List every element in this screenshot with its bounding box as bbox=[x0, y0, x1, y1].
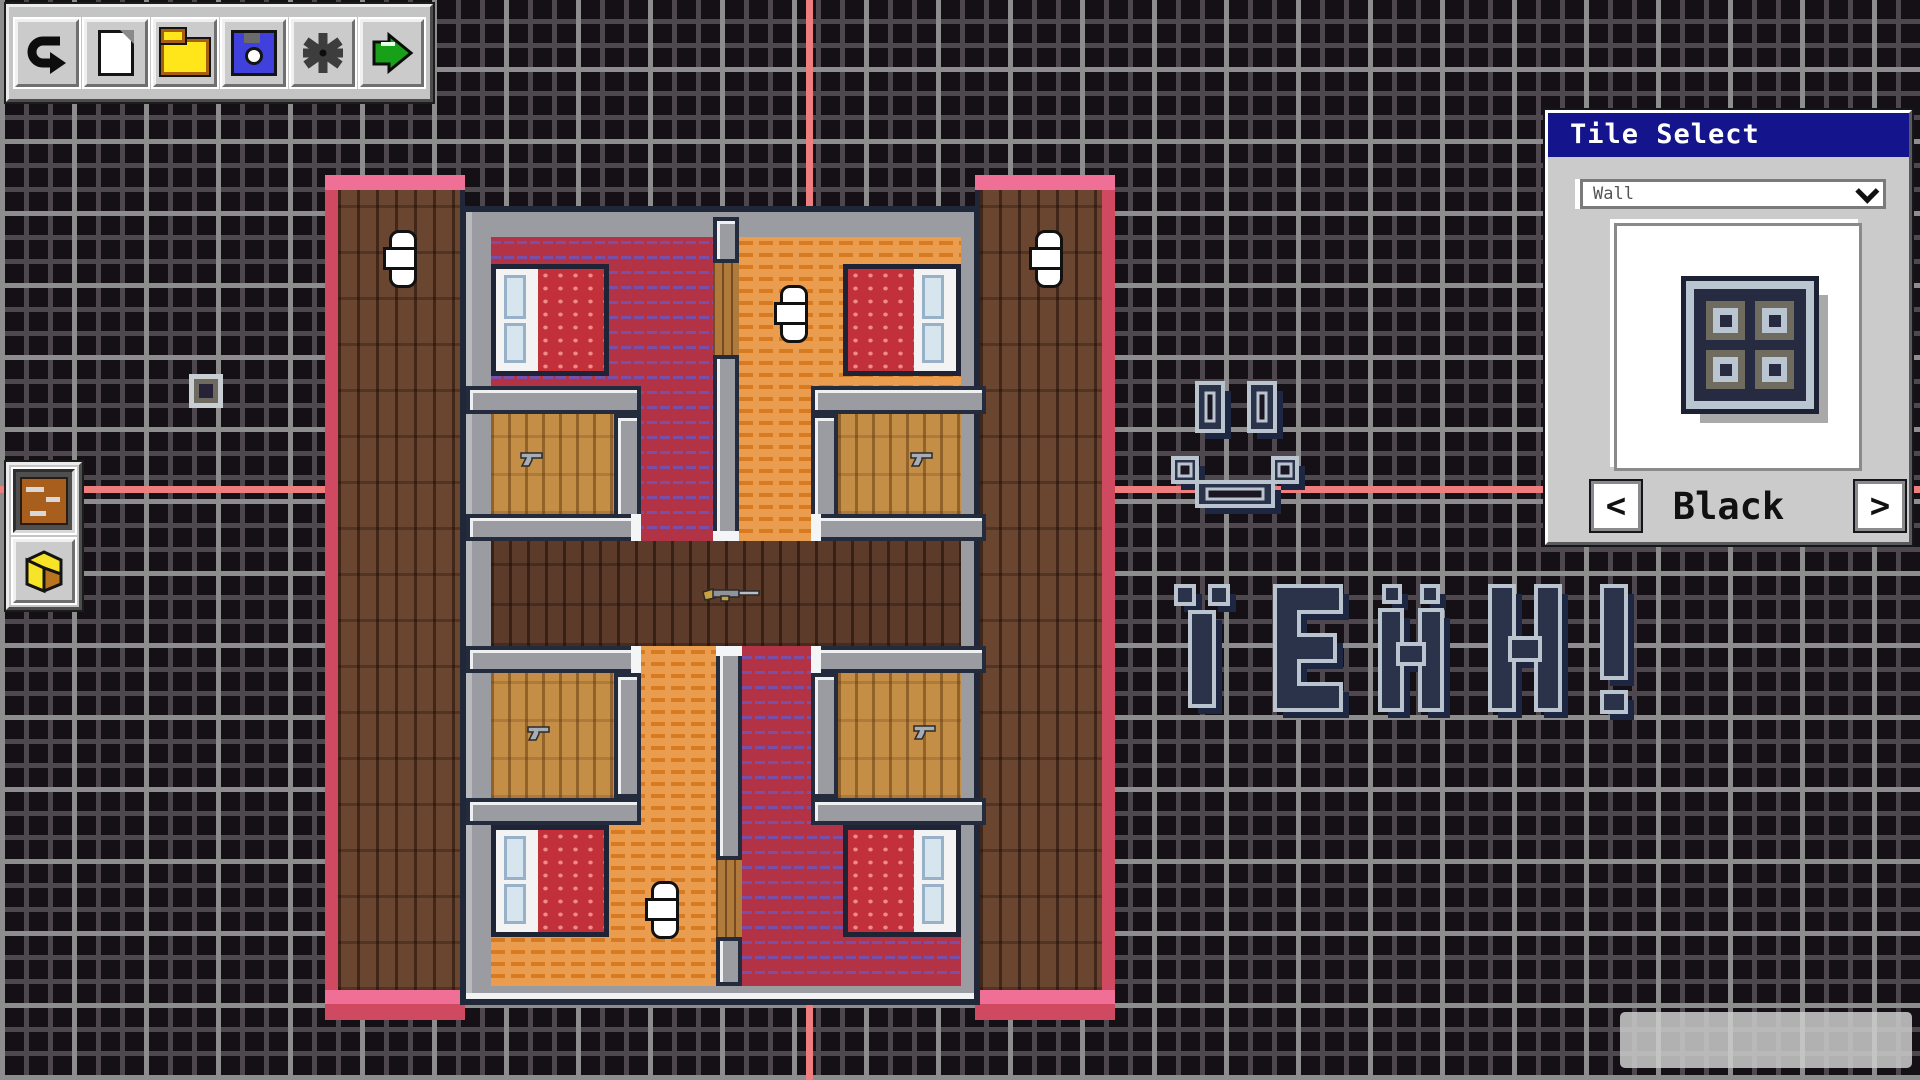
porch-trim bbox=[975, 1004, 1115, 1020]
closet-floor bbox=[491, 414, 614, 514]
door-gap bbox=[631, 514, 641, 541]
porch-trim bbox=[975, 990, 1115, 1004]
porch-right bbox=[975, 175, 1115, 1020]
pistol-item bbox=[519, 449, 545, 467]
wall-segment bbox=[614, 673, 641, 798]
wood-tile-icon bbox=[20, 477, 68, 525]
open-file-button[interactable] bbox=[153, 19, 217, 87]
porch-trim bbox=[325, 175, 465, 190]
floppy-disk-icon bbox=[231, 30, 277, 76]
new-file-button[interactable] bbox=[84, 19, 148, 87]
door-gap bbox=[811, 646, 821, 673]
door-gap bbox=[811, 514, 821, 541]
porch-left bbox=[325, 175, 465, 1020]
pillar bbox=[389, 230, 417, 288]
wall-tile-preview bbox=[1686, 281, 1814, 409]
closet-floor bbox=[838, 673, 961, 798]
tile-preview-box bbox=[1614, 223, 1862, 471]
wall-cap bbox=[713, 531, 739, 541]
yellow-block-icon bbox=[21, 548, 67, 594]
wall-segment bbox=[466, 646, 641, 673]
wall-segment bbox=[811, 673, 838, 798]
chevron-down-icon bbox=[1855, 179, 1879, 203]
pistol-item bbox=[526, 723, 552, 741]
pistol-item bbox=[909, 449, 935, 467]
panel-title: Tile Select bbox=[1548, 113, 1909, 157]
pillar bbox=[1035, 230, 1063, 288]
wall-segment bbox=[811, 798, 986, 825]
bed bbox=[843, 264, 961, 376]
dropdown-value: Wall bbox=[1593, 184, 1634, 204]
porch-floor bbox=[338, 190, 460, 990]
wall-segment bbox=[466, 798, 641, 825]
rifle-item bbox=[701, 584, 761, 604]
wall-segment bbox=[466, 514, 641, 541]
toolbar bbox=[6, 4, 433, 102]
house-tile-art bbox=[325, 175, 1115, 1020]
save-button[interactable] bbox=[222, 19, 286, 87]
wall-segment bbox=[811, 514, 986, 541]
wooden-door bbox=[713, 259, 739, 359]
bed bbox=[491, 264, 609, 376]
pistol-item bbox=[912, 722, 938, 740]
wall-segment bbox=[811, 386, 986, 414]
tool-panel bbox=[6, 462, 82, 610]
house-interior bbox=[460, 206, 980, 1005]
status-tooltip-box bbox=[1620, 1012, 1912, 1068]
tile-detail bbox=[1706, 301, 1745, 340]
wall-segment bbox=[466, 386, 641, 414]
closet-floor bbox=[491, 673, 614, 798]
porch-floor bbox=[980, 190, 1102, 990]
run-button[interactable] bbox=[360, 19, 424, 87]
yeah-tile-art bbox=[1170, 580, 1640, 720]
wall-cap bbox=[716, 646, 742, 656]
next-tile-button[interactable]: > bbox=[1855, 481, 1905, 531]
tile-select-panel: Tile Select Wall < Black > bbox=[1545, 110, 1912, 545]
porch-trim bbox=[975, 175, 1115, 190]
settings-button[interactable] bbox=[291, 19, 355, 87]
door-gap bbox=[631, 646, 641, 673]
porch-trim bbox=[1102, 175, 1115, 1020]
wooden-door bbox=[716, 856, 742, 941]
wall-segment bbox=[811, 646, 986, 673]
closet-floor bbox=[838, 414, 961, 514]
block-tool-button[interactable] bbox=[13, 539, 75, 603]
placed-single-wall-tile bbox=[194, 379, 218, 403]
undo-arrow-icon bbox=[24, 30, 70, 76]
undo-button[interactable] bbox=[15, 19, 79, 87]
bed bbox=[491, 825, 609, 937]
porch-trim bbox=[325, 1004, 465, 1020]
floor-tile-tool-button[interactable] bbox=[13, 469, 75, 533]
porch-trim bbox=[325, 175, 338, 1020]
tile-detail bbox=[1706, 350, 1745, 389]
porch-trim bbox=[325, 990, 465, 1004]
new-file-icon bbox=[98, 30, 134, 76]
gear-icon bbox=[300, 30, 346, 76]
bed bbox=[843, 825, 961, 937]
app-window: { "app": {"title": "Tile Map Editor"}, "… bbox=[0, 0, 1920, 1080]
tile-category-dropdown[interactable]: Wall bbox=[1580, 179, 1886, 209]
folder-icon bbox=[161, 39, 209, 75]
tile-detail bbox=[1755, 350, 1794, 389]
smiley-face-tile-art bbox=[1165, 375, 1325, 520]
tile-detail bbox=[1755, 301, 1794, 340]
pillar bbox=[780, 285, 808, 343]
play-icon bbox=[369, 30, 415, 76]
pillar bbox=[651, 881, 679, 939]
